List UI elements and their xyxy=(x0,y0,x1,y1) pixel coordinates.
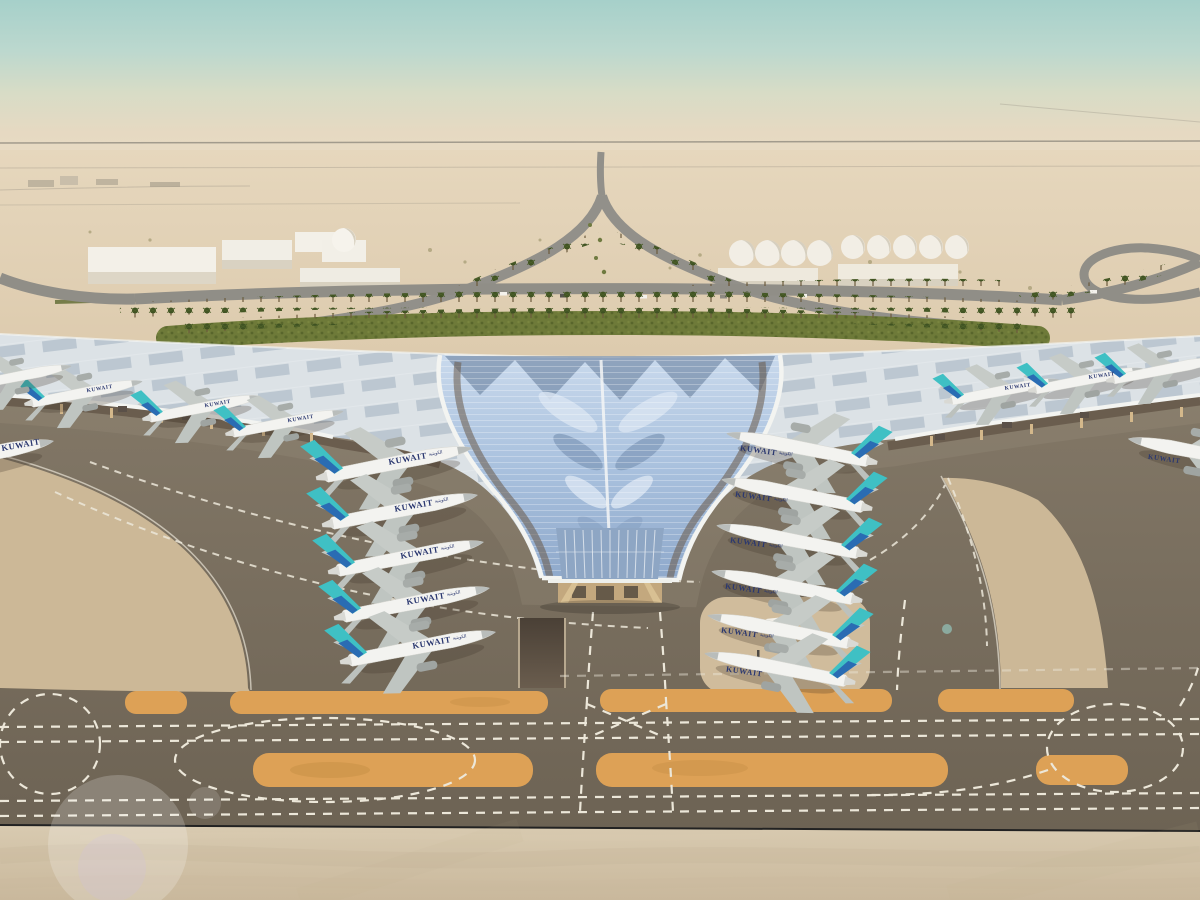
rendering-canvas: KUWAITالكويتية KUWAITالكويتية KUWAITالكو… xyxy=(0,0,1200,900)
sunken-service-road xyxy=(520,618,564,688)
sky xyxy=(0,0,1200,170)
airport-aerial-rendering: KUWAITالكويتية KUWAITالكويتية KUWAITالكو… xyxy=(0,0,1200,900)
lens-flare-dot xyxy=(942,624,952,634)
dome-building xyxy=(332,228,356,252)
